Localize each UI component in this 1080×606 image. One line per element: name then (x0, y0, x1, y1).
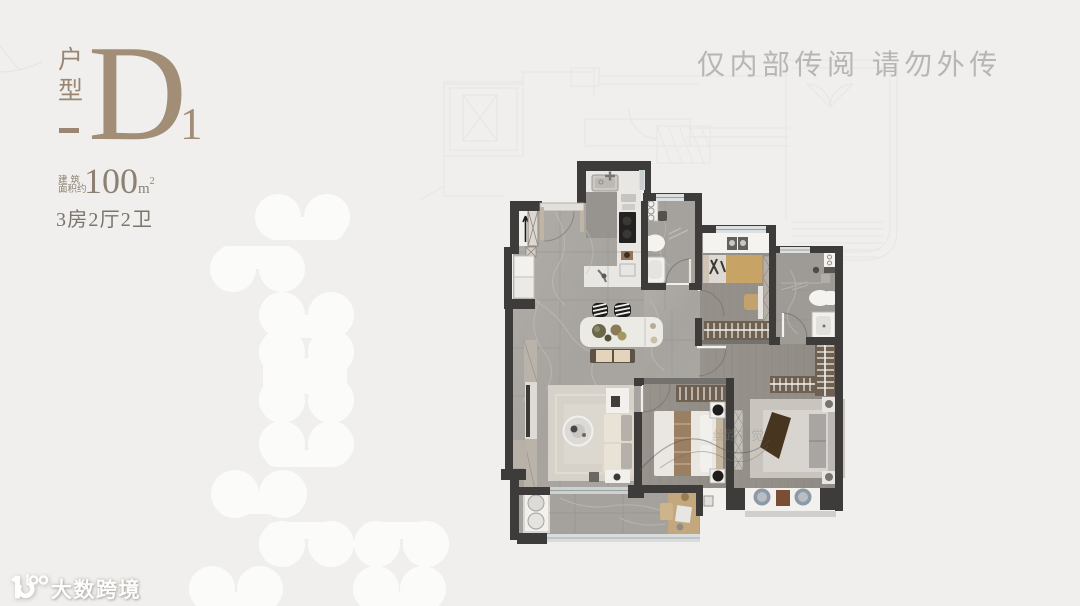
svg-text:丝路视觉: 丝路视觉 (712, 428, 764, 443)
